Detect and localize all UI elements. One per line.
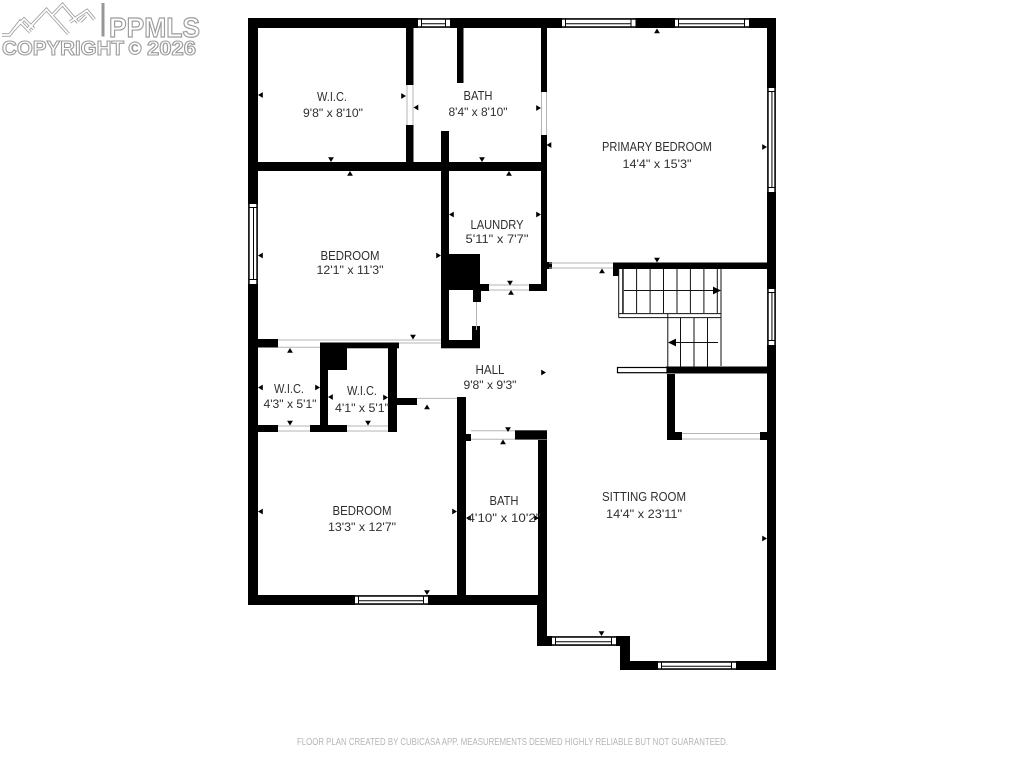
svg-text:SITTING ROOM: SITTING ROOM	[602, 490, 686, 504]
svg-text:W.I.C.: W.I.C.	[274, 382, 304, 396]
svg-text:FLOOR PLAN CREATED BY CUBICASA: FLOOR PLAN CREATED BY CUBICASA APP. MEAS…	[297, 736, 728, 748]
svg-text:BEDROOM: BEDROOM	[321, 249, 380, 263]
svg-text:W.I.C.: W.I.C.	[317, 90, 347, 104]
svg-text:12'1" x 11'3": 12'1" x 11'3"	[317, 263, 384, 277]
svg-text:BEDROOM: BEDROOM	[333, 504, 392, 518]
svg-text:HALL: HALL	[476, 363, 505, 377]
svg-text:LAUNDRY: LAUNDRY	[471, 218, 525, 232]
svg-text:5'11" x 7'7": 5'11" x 7'7"	[466, 232, 529, 246]
svg-text:W.I.C.: W.I.C.	[347, 384, 377, 398]
svg-text:9'8" x 8'10": 9'8" x 8'10"	[303, 106, 363, 120]
svg-text:©: ©	[128, 39, 142, 60]
svg-text:BATH: BATH	[490, 494, 519, 508]
svg-text:9'8" x 9'3": 9'8" x 9'3"	[464, 378, 517, 392]
svg-text:4'10" x 10'2": 4'10" x 10'2"	[468, 511, 541, 525]
svg-text:14'4" x 15'3": 14'4" x 15'3"	[623, 157, 692, 171]
svg-text:BATH: BATH	[464, 89, 493, 103]
svg-text:4'1" x 5'1": 4'1" x 5'1"	[335, 401, 389, 415]
svg-text:PRIMARY BEDROOM: PRIMARY BEDROOM	[602, 140, 712, 154]
svg-text:2026: 2026	[147, 38, 196, 60]
svg-text:13'3" x 12'7": 13'3" x 12'7"	[328, 520, 396, 534]
svg-text:14'4" x 23'11": 14'4" x 23'11"	[606, 507, 682, 521]
svg-text:4'3" x 5'1": 4'3" x 5'1"	[264, 397, 317, 411]
svg-text:8'4" x 8'10": 8'4" x 8'10"	[449, 105, 508, 119]
svg-text:COPYRIGHT: COPYRIGHT	[2, 38, 124, 60]
